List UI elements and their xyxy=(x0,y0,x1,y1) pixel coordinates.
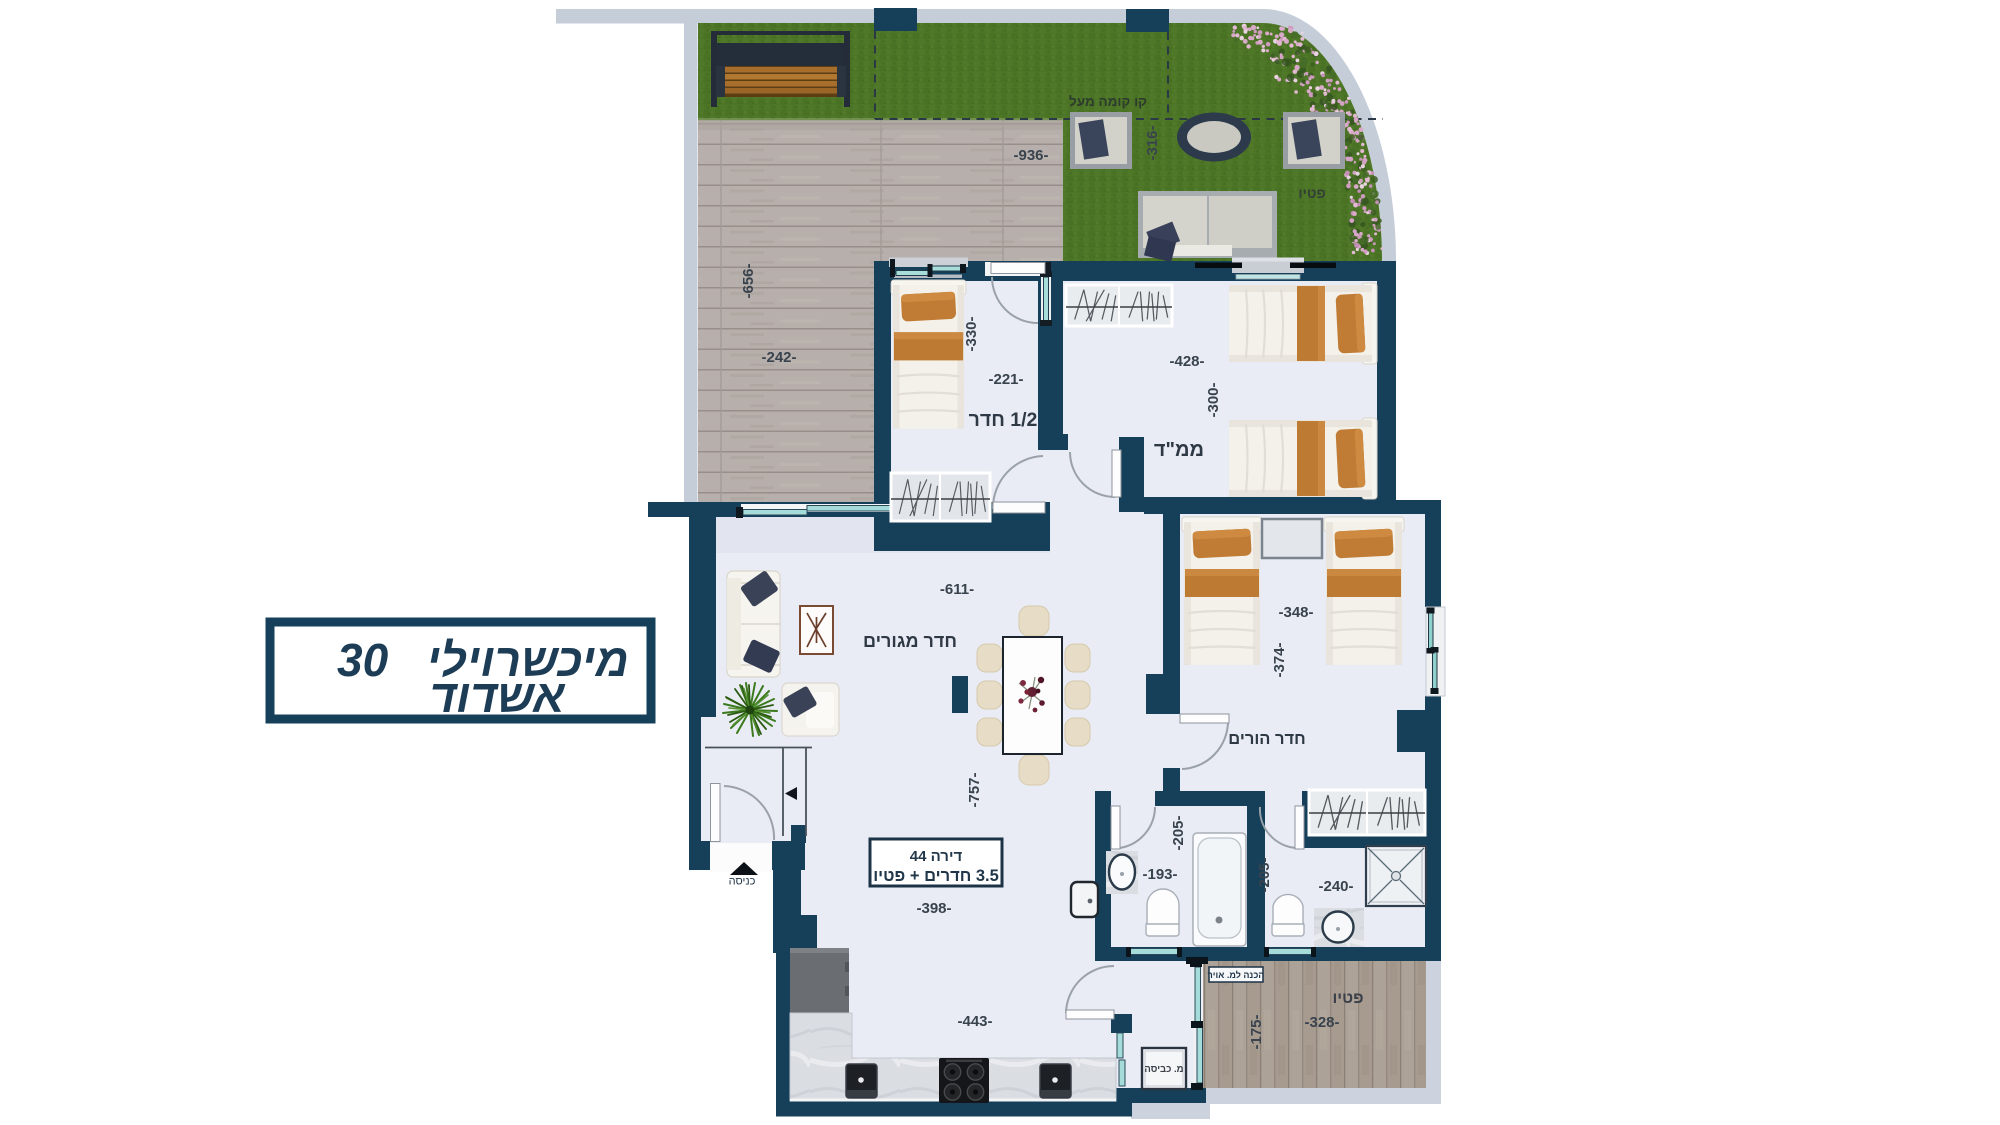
svg-text:ממ"ד: ממ"ד xyxy=(1154,439,1204,461)
svg-text:-374-: -374- xyxy=(1271,642,1288,677)
svg-text:פטיו: פטיו xyxy=(1332,990,1363,1007)
svg-text:חדר הורים: חדר הורים xyxy=(1228,730,1305,748)
svg-text:-348-: -348- xyxy=(1278,604,1313,621)
svg-text:-757-: -757- xyxy=(966,772,983,807)
svg-text:-428-: -428- xyxy=(1169,353,1204,370)
svg-text:חדר מגורים: חדר מגורים xyxy=(863,631,957,651)
svg-text:אשדוד: אשדוד xyxy=(430,670,567,722)
svg-text:-316-: -316- xyxy=(1144,125,1161,160)
svg-text:קו קומה מעל: קו קומה מעל xyxy=(1069,94,1147,109)
svg-text:-240-: -240- xyxy=(1318,878,1353,895)
svg-text:פטיו: פטיו xyxy=(1298,185,1325,201)
svg-text:-175-: -175- xyxy=(1248,1014,1265,1049)
svg-text:3.5 חדרים + פטיו: 3.5 חדרים + פטיו xyxy=(873,867,999,885)
svg-text:-611-: -611- xyxy=(940,581,974,598)
svg-text:-936-: -936- xyxy=(1013,147,1048,164)
svg-text:כניסה: כניסה xyxy=(729,876,756,888)
svg-text:-221-: -221- xyxy=(988,371,1023,388)
svg-text:-656-: -656- xyxy=(740,263,757,298)
svg-text:-328-: -328- xyxy=(1304,1014,1339,1031)
svg-text:-398-: -398- xyxy=(916,900,951,917)
svg-text:-300-: -300- xyxy=(1205,382,1222,417)
svg-text:-242-: -242- xyxy=(761,349,796,366)
svg-text:מ. כביסה: מ. כביסה xyxy=(1144,1064,1183,1075)
svg-text:-330-: -330- xyxy=(963,316,980,351)
svg-text:-205-: -205- xyxy=(1256,857,1273,892)
svg-text:-193-: -193- xyxy=(1142,866,1177,883)
svg-text:-443-: -443- xyxy=(957,1013,992,1030)
svg-text:הכנה למ. אויר: הכנה למ. אויר xyxy=(1208,970,1265,980)
svg-text:דירה 44: דירה 44 xyxy=(910,848,963,865)
svg-text:-205-: -205- xyxy=(1170,815,1187,850)
svg-text:1/2 חדר: 1/2 חדר xyxy=(969,409,1038,431)
